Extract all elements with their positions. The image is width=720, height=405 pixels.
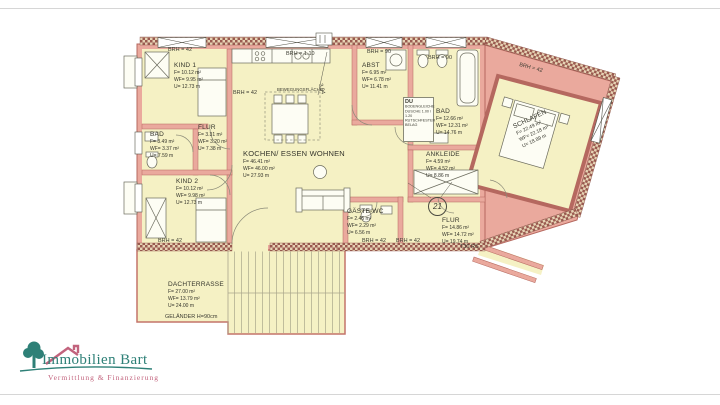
room-perimeter: U= 24.00 m <box>168 303 224 310</box>
fire-door-label: T30 RS <box>460 244 479 251</box>
symbol-21-number: 21 <box>433 202 442 211</box>
floorplan-page: KIND 1 F= 10.12 m² WF= 9.95 m² U= 12.73 … <box>0 0 720 405</box>
room-living-area: WF= 13.79 m² <box>168 296 224 303</box>
brh-label: BRH = 42 <box>168 47 192 54</box>
room-area: F= 12.66 m² <box>436 116 468 123</box>
room-area: F= 3.49 m² <box>150 139 179 146</box>
terrace-decking <box>229 252 344 334</box>
logo-subtitle: Vermittlung & Finanzierung <box>48 373 159 382</box>
room-living-area: WF= 46.00 m² <box>243 166 345 173</box>
room-perimeter: U= 12.73 m <box>176 200 205 207</box>
room-name: FLUR <box>442 217 474 224</box>
window-kind1-left <box>135 58 142 86</box>
brh-label: BRH = 42 <box>158 238 182 245</box>
room-name: BAD <box>150 131 179 138</box>
brh-label: BRH = 1.10 <box>286 51 315 58</box>
room-label-terrasse: DACHTERRASSE F= 27.00 m² WF= 13.79 m² U=… <box>168 281 224 309</box>
logo-graphic <box>12 338 162 400</box>
logo-title: Immobilien Bart <box>42 352 148 369</box>
room-living-area: WF= 9.98 m² <box>176 193 205 200</box>
room-name: ABST <box>362 62 391 69</box>
room-area: F= 10.12 m² <box>176 186 205 193</box>
room-label-flur2: FLUR F= 14.86 m² WF= 14.72 m² U= 19.74 m <box>442 217 474 245</box>
symbol-21-circle: 21 <box>428 197 447 216</box>
kitchen-counter <box>232 49 330 63</box>
room-name: FLUR <box>198 124 227 131</box>
room-living-area: WF= 6.78 m² <box>362 77 391 84</box>
room-name: BAD <box>436 108 468 115</box>
room-perimeter: U= 7.38 m <box>198 146 227 153</box>
company-logo: Immobilien Bart Vermittlung & Finanzieru… <box>12 338 162 400</box>
wardrobe-kind2 <box>146 198 166 238</box>
room-label-kind2: KIND 2 F= 10.12 m² WF= 9.98 m² U= 12.73 … <box>176 178 205 206</box>
sofa <box>296 188 350 212</box>
room-area: F= 46.41 m² <box>243 159 345 166</box>
room-name: DACHTERRASSE <box>168 281 224 288</box>
brh-label: BRH = 42 <box>362 238 386 245</box>
brh-label: BRH = 90 <box>428 55 452 62</box>
room-living-area: WF= 2.29 m² <box>347 223 384 230</box>
movement-area-label: BEWEGUNGSFLÄCHE <box>277 88 323 94</box>
room-name: GÄSTE-WC <box>347 208 384 215</box>
wardrobe-kind1 <box>145 52 169 78</box>
room-area: F= 3.31 m² <box>198 132 227 139</box>
window-kind1-top <box>158 38 206 48</box>
room-perimeter: U= 11.41 m <box>362 84 391 91</box>
room-area: F= 14.86 m² <box>442 225 474 232</box>
room-area: F= 10.12 m² <box>174 70 203 77</box>
window-bad1-left <box>135 132 142 154</box>
room-perimeter: U= 6.56 m <box>347 230 384 237</box>
room-living-area: WF= 12.31 m² <box>436 123 468 130</box>
room-area: F= 2.45 m² <box>347 216 384 223</box>
room-label-abst: ABST F= 6.95 m² WF= 6.78 m² U= 11.41 m <box>362 62 391 90</box>
room-perimeter: U= 12.73 m <box>174 84 203 91</box>
room-label-kind1: KIND 1 F= 10.12 m² WF= 9.95 m² U= 12.73 … <box>174 62 203 90</box>
window-kind2-left <box>135 184 142 212</box>
room-living-area: WF= 9.95 m² <box>174 77 203 84</box>
room-area: F= 6.95 m² <box>362 70 391 77</box>
room-label-bad1: BAD F= 3.49 m² WF= 3.37 m² U= 7.59 m <box>150 131 179 159</box>
room-label-ankleide: ANKLEIDE F= 4.59 m² WF= 4.52 m² U= 8.86 … <box>426 151 460 179</box>
room-living-area: WF= 4.52 m² <box>426 166 460 173</box>
room-perimeter: U= 27.93 m <box>243 173 345 180</box>
room-area: F= 4.59 m² <box>426 159 460 166</box>
brh-label: BRH = 42 <box>396 238 420 245</box>
logo-tree-icon <box>23 342 44 369</box>
shower-note-box: DU BODENGLEICHE DUSCHE 1.00 / 1.20 RUTSC… <box>403 97 434 142</box>
room-living-area: WF= 3.37 m² <box>150 146 179 153</box>
dining-table <box>272 95 308 143</box>
bathtub-bad2 <box>457 50 478 106</box>
room-name: KOCHEN/ ESSEN WOHNEN <box>243 149 345 158</box>
room-label-bad2: BAD F= 12.66 m² WF= 12.31 m² U= 14.76 m <box>436 108 468 136</box>
room-label-wohnen: KOCHEN/ ESSEN WOHNEN F= 46.41 m² WF= 46.… <box>243 149 345 179</box>
railing-label: GELÄNDER H=90cm <box>165 314 217 321</box>
room-perimeter: U= 8.86 m <box>426 173 460 180</box>
room-name: KIND 2 <box>176 178 205 185</box>
room-area: F= 27.00 m² <box>168 289 224 296</box>
brh-label: BRH = 90 <box>367 49 391 56</box>
shower-note: BODENGLEICHE DUSCHE 1.00 / 1.20 RUTSCHFE… <box>405 105 434 128</box>
window-bad2-top <box>426 38 466 48</box>
room-perimeter: U= 7.59 m <box>150 153 179 160</box>
room-name: KIND 1 <box>174 62 203 69</box>
window-abst-top <box>366 38 402 48</box>
room-label-flur1: FLUR F= 3.31 m² WF= 3.20 m² U= 7.38 m <box>198 124 227 152</box>
room-label-gaestewc: GÄSTE-WC F= 2.45 m² WF= 2.29 m² U= 6.56 … <box>347 208 384 236</box>
brh-label: BRH = 42 <box>233 90 257 97</box>
room-living-area: WF= 3.20 m² <box>198 139 227 146</box>
terrace-door-opening <box>232 244 268 251</box>
room-name: ANKLEIDE <box>426 151 460 158</box>
room-living-area: WF= 14.72 m² <box>442 232 474 239</box>
vent-symbol <box>316 33 332 45</box>
room-perimeter: U= 14.76 m <box>436 130 468 137</box>
